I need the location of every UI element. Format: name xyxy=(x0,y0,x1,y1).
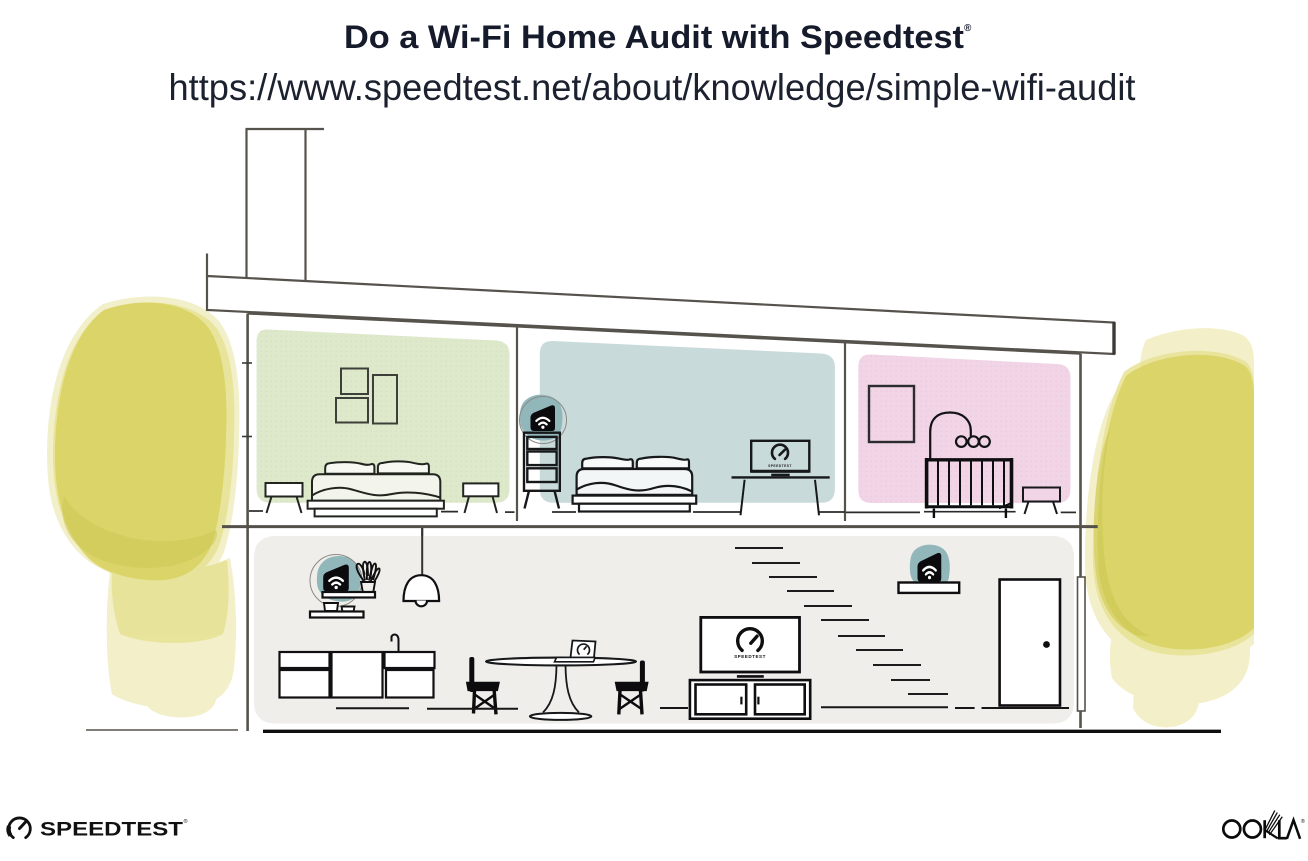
svg-text:®: ® xyxy=(964,23,972,34)
svg-text:Do a Wi-Fi Home Audit with Spe: Do a Wi-Fi Home Audit with Speedtest xyxy=(344,19,964,55)
svg-text:SPEEDTEST: SPEEDTEST xyxy=(768,464,792,468)
svg-text:SPEEDTEST: SPEEDTEST xyxy=(40,820,183,841)
svg-text:SPEEDTEST: SPEEDTEST xyxy=(734,654,766,659)
svg-text:®: ® xyxy=(1301,818,1305,825)
svg-text:®: ® xyxy=(184,818,188,825)
svg-text:https://www.speedtest.net/abou: https://www.speedtest.net/about/knowledg… xyxy=(169,66,1137,108)
